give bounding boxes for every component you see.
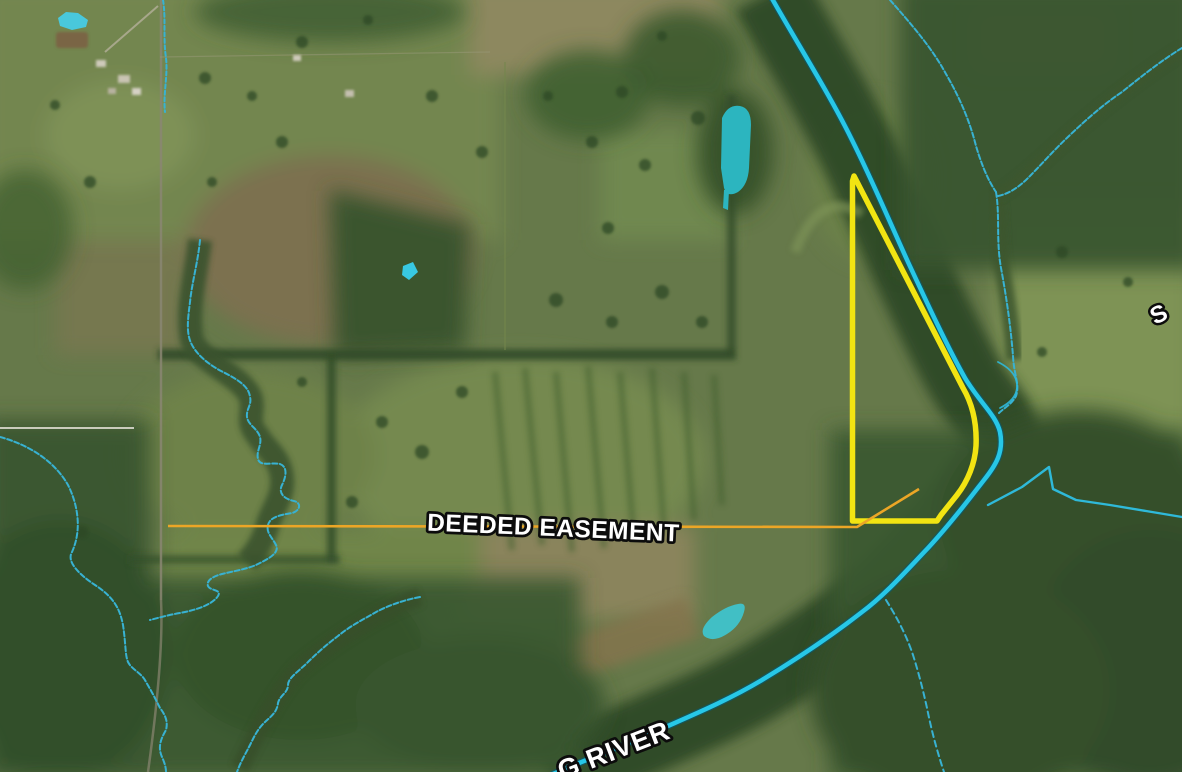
satellite-map: DEEDED EASEMENT G RIVER S	[0, 0, 1182, 772]
map-view[interactable]: DEEDED EASEMENT G RIVER S	[0, 0, 1182, 772]
